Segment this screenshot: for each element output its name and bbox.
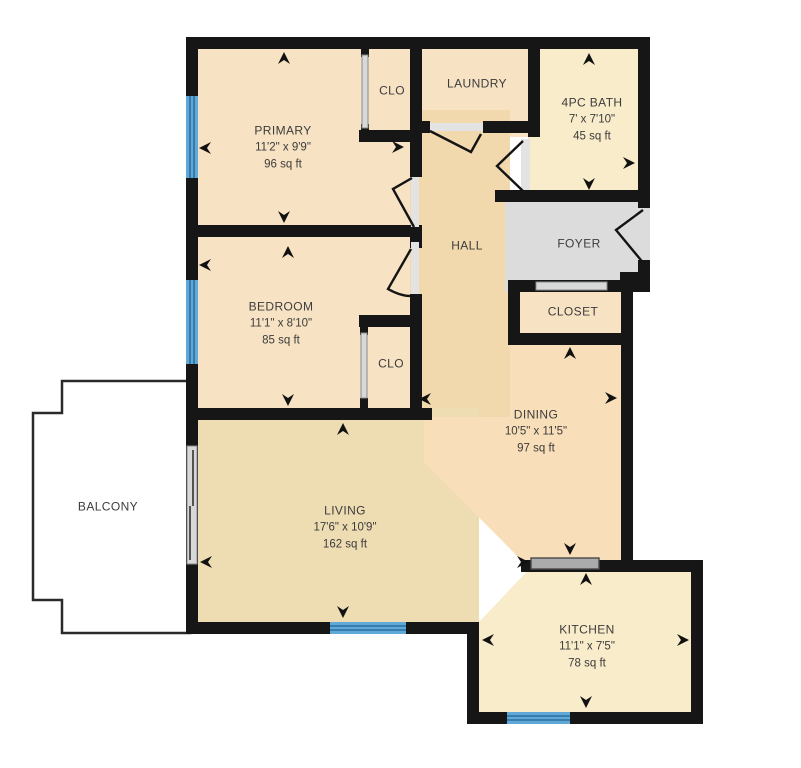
door-threshold [430, 123, 483, 131]
room-label-laundry: LAUNDRY [447, 76, 507, 93]
room-label-bedroom: BEDROOM 11'1" x 8'10" 85 sq ft [249, 299, 314, 350]
hall-fill [410, 110, 510, 417]
room-label-living: LIVING 17'6" x 10'9" 162 sq ft [313, 503, 376, 554]
kitchen-sliding-door [531, 558, 599, 569]
closet-sliding-door [536, 282, 607, 290]
closet-sliding-door [361, 333, 367, 398]
room-label-foyer: FOYER [557, 236, 600, 253]
door-threshold [411, 177, 419, 227]
floor-plan: PRIMARY 11'2" x 9'9" 96 sq ft CLO LAUNDR… [0, 0, 801, 768]
window [330, 622, 406, 634]
window [507, 712, 570, 724]
room-label-balcony: BALCONY [78, 499, 138, 516]
room-label-closet: CLOSET [548, 304, 598, 321]
door-threshold [411, 242, 419, 294]
room-label-kitchen: KITCHEN 11'1" x 7'5" 78 sq ft [559, 622, 615, 673]
room-label-clo-primary: CLO [379, 83, 405, 100]
floor-plan-drawing [0, 0, 801, 768]
room-label-dining: DINING 10'5" x 11'5" 97 sq ft [505, 407, 567, 458]
room-label-primary: PRIMARY 11'2" x 9'9" 96 sq ft [254, 123, 311, 174]
room-label-hall: HALL [451, 238, 483, 255]
room-label-clo-bedroom: CLO [378, 356, 404, 373]
door-threshold [521, 139, 530, 190]
balcony-sliding-door [187, 446, 197, 564]
window [186, 280, 198, 364]
closet-sliding-door [362, 55, 368, 128]
entry-door-opening [638, 208, 650, 260]
room-label-bath: 4PC BATH 7' x 7'10" 45 sq ft [562, 95, 623, 146]
window [186, 96, 198, 178]
